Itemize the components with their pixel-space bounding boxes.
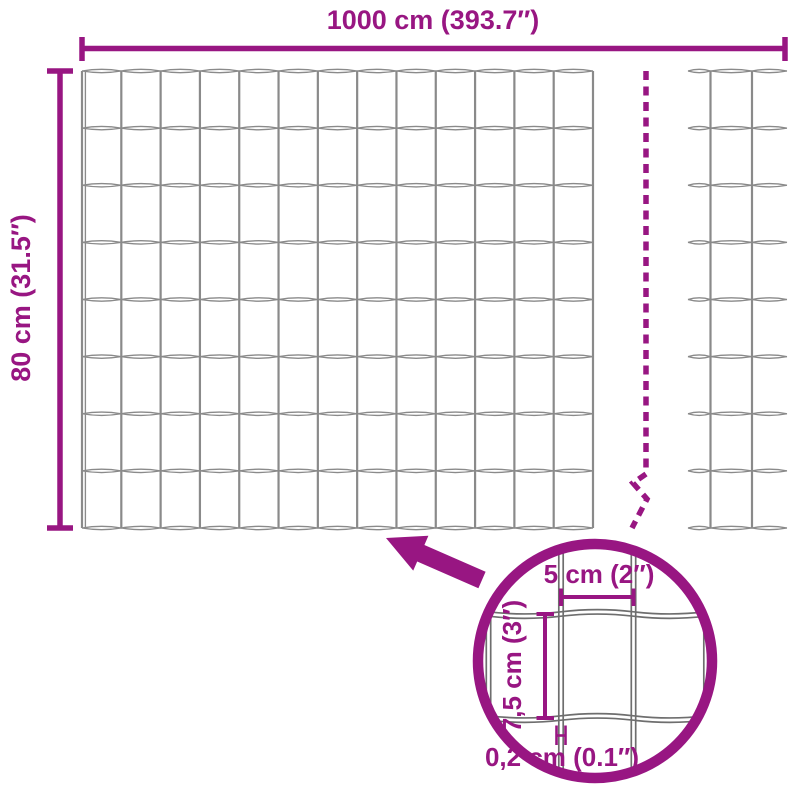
horizontal-wire: [688, 242, 787, 244]
horizontal-wire: [688, 71, 787, 73]
horizontal-wire: [688, 184, 787, 186]
total-width-label: 1000 cm (393.7″): [327, 5, 540, 35]
horizontal-wire: [688, 185, 787, 187]
horizontal-wire: [688, 412, 787, 414]
horizontal-wire: [688, 526, 787, 528]
top-width-dimension: 1000 cm (393.7″): [82, 5, 785, 61]
break-line: [632, 71, 647, 528]
horizontal-wire: [82, 242, 593, 244]
horizontal-wire: [688, 355, 787, 357]
horizontal-wire: [688, 241, 787, 243]
mesh-width-label: 5 cm (2″): [544, 559, 655, 589]
horizontal-wire: [688, 300, 787, 302]
horizontal-wire: [688, 357, 787, 359]
horizontal-wire: [688, 69, 787, 71]
horizontal-wire: [82, 300, 593, 302]
horizontal-wire: [82, 71, 593, 73]
horizontal-wire: [82, 528, 593, 530]
mesh-height-label: 7,5 cm (3″): [497, 600, 527, 732]
horizontal-wire: [688, 126, 787, 128]
horizontal-wire: [82, 471, 593, 473]
wire-thickness-label: 0,2 cm (0.1″): [485, 742, 639, 772]
horizontal-wire: [82, 414, 593, 416]
horizontal-wire: [688, 128, 787, 130]
horizontal-wire: [688, 298, 787, 300]
horizontal-wire: [688, 414, 787, 416]
horizontal-wire: [82, 185, 593, 187]
total-height-label: 80 cm (31.5″): [6, 214, 36, 382]
mesh-height-dimension: 7,5 cm (3″): [497, 600, 554, 732]
horizontal-wire: [688, 471, 787, 473]
horizontal-wire: [82, 357, 593, 359]
horizontal-wire: [82, 128, 593, 130]
magnifier-arrow-icon: [386, 536, 486, 588]
fence-dimension-diagram: 1000 cm (393.7″) 80 cm (31.5″) 5 cm (2″)…: [0, 0, 800, 800]
horizontal-wire: [688, 528, 787, 530]
wire-mesh-right-panel: [688, 69, 787, 529]
left-height-dimension: 80 cm (31.5″): [6, 71, 73, 528]
horizontal-wire: [688, 469, 787, 471]
wire-mesh-main-panel: [82, 69, 593, 529]
